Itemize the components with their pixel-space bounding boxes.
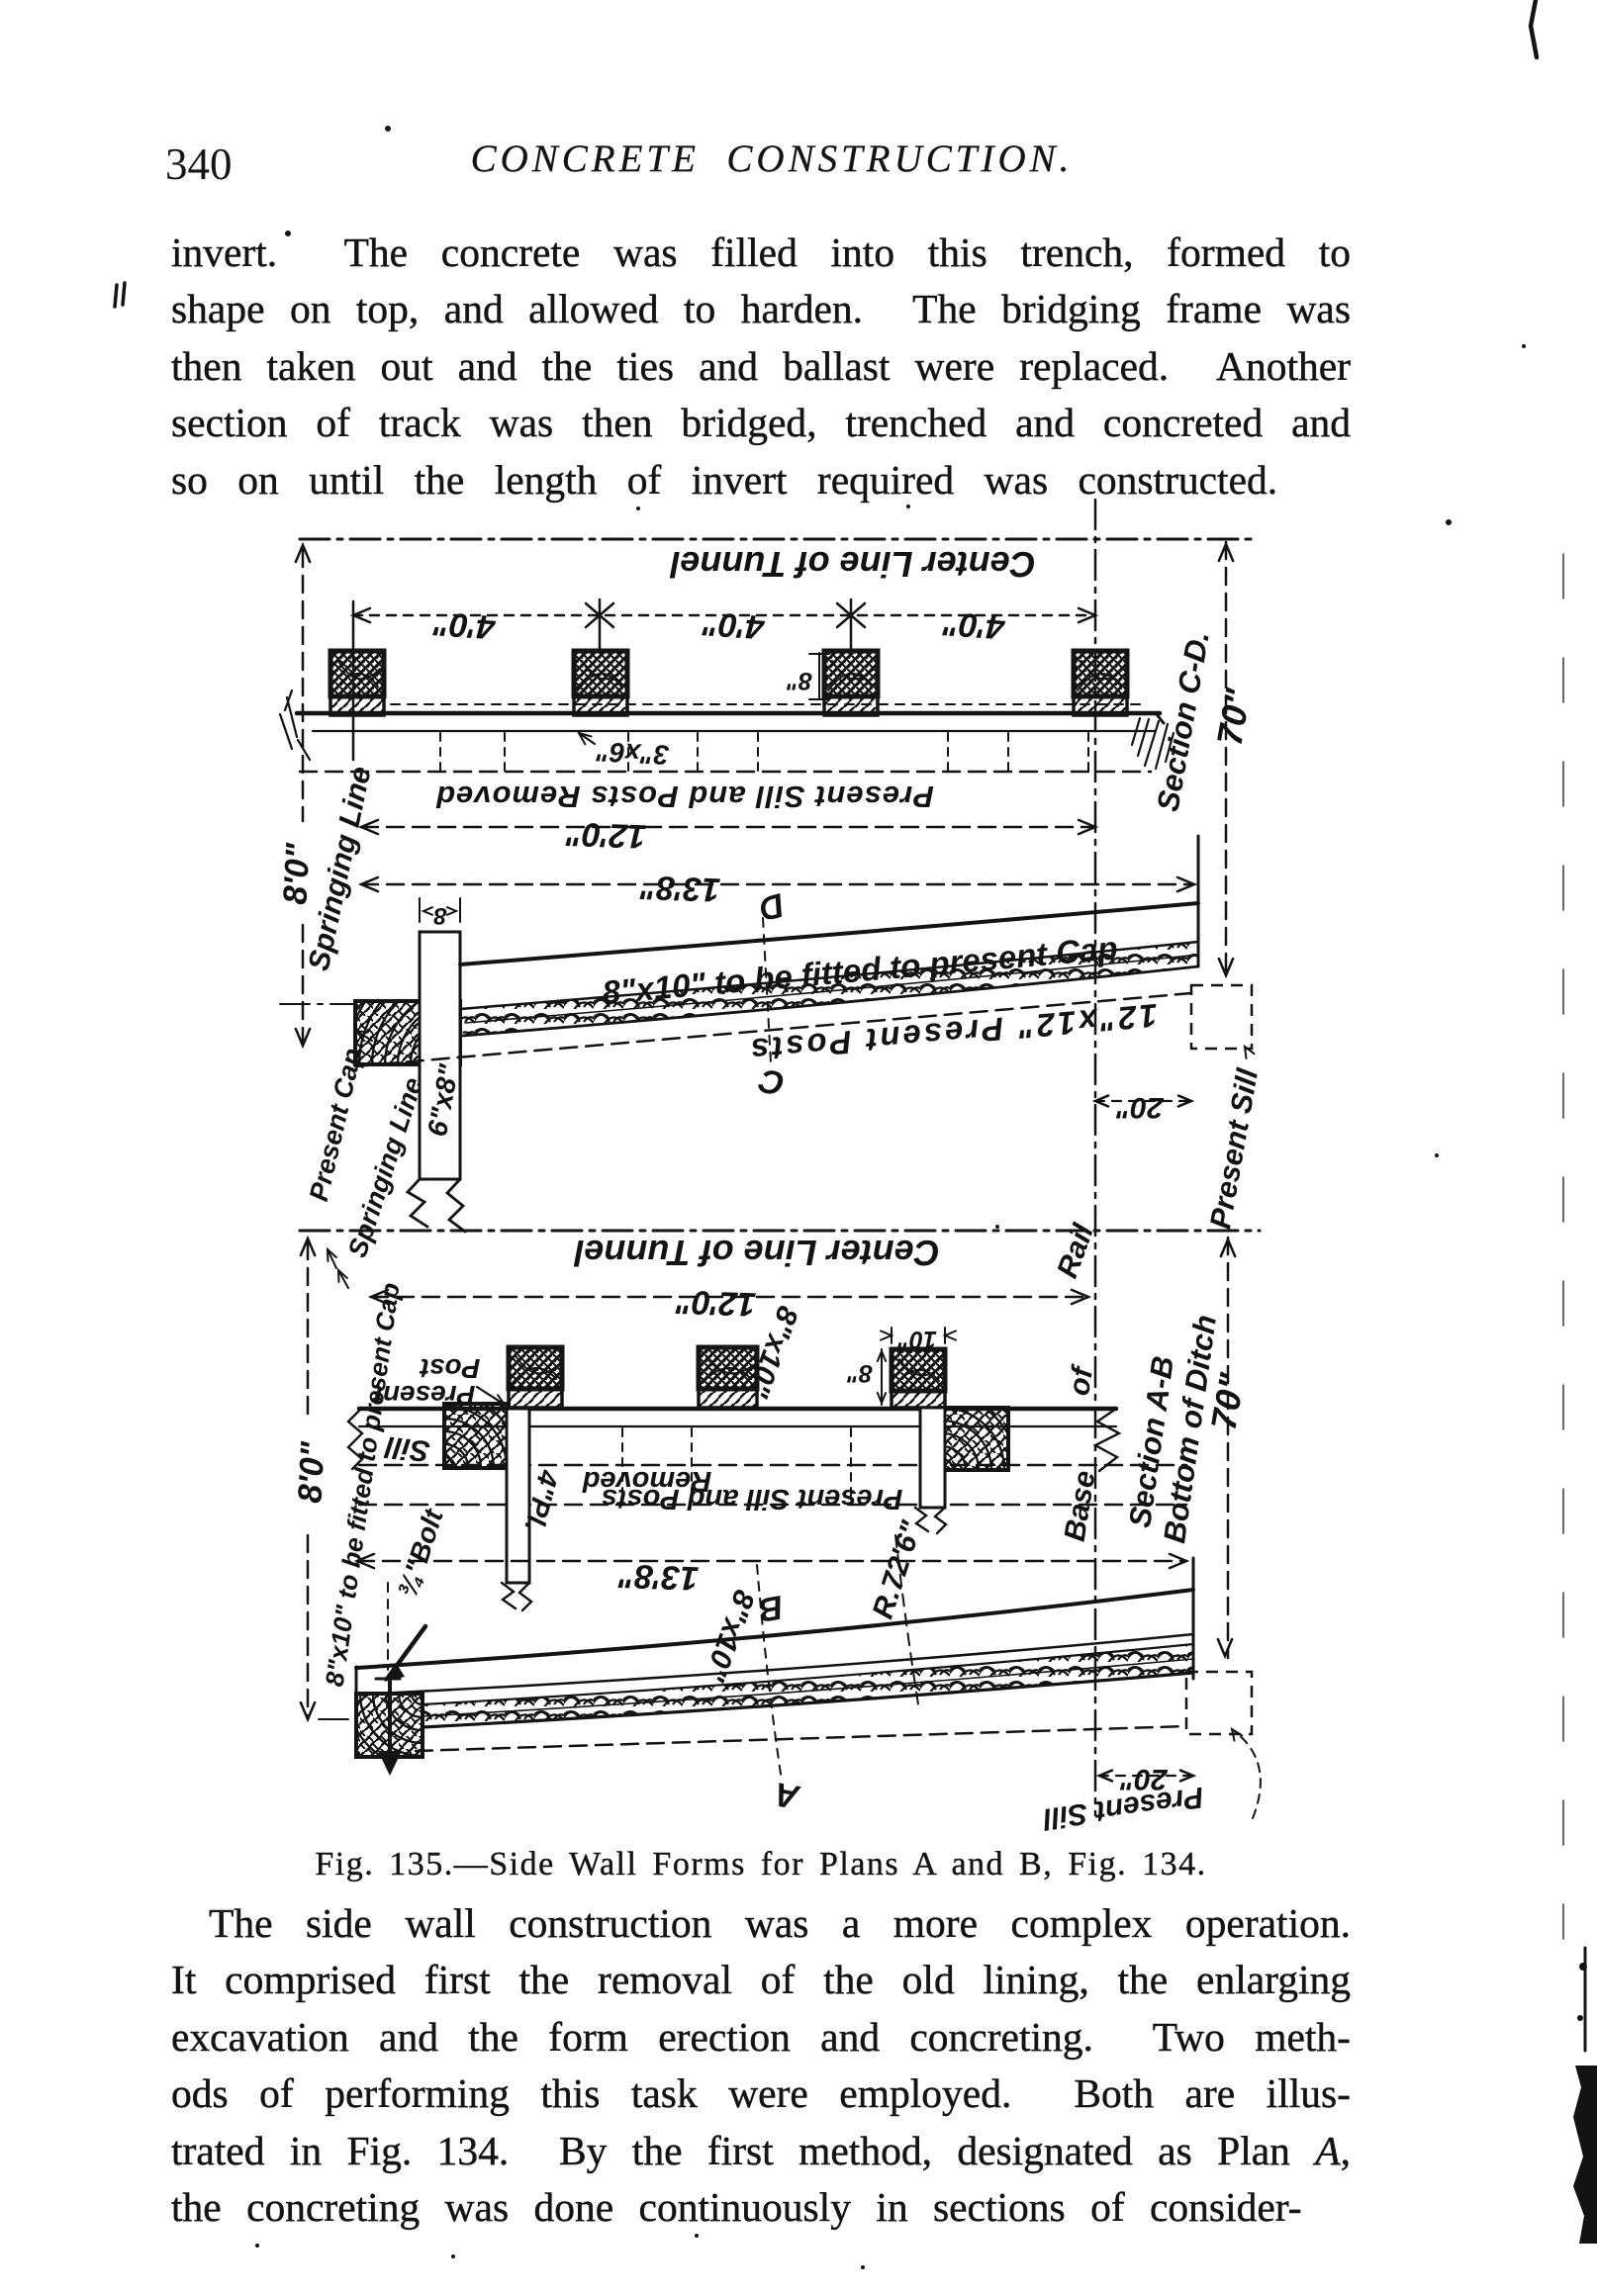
svg-text:4'0": 4'0"	[701, 604, 766, 646]
svg-text:12'0": 12'0"	[675, 1283, 757, 1324]
svg-text:Present: Present	[372, 1380, 475, 1411]
svg-text:4'0": 4'0"	[431, 604, 497, 646]
svg-text:8'0": 8'0"	[291, 1440, 331, 1505]
svg-text:13'8": 13'8"	[617, 1557, 700, 1598]
svg-text:Present Cap: Present Cap	[304, 1046, 368, 1204]
svg-text:8": 8"	[846, 1359, 873, 1387]
svg-text:Present Sill and Posts: Present Sill and Posts	[602, 1483, 903, 1515]
svg-text:Post: Post	[419, 1353, 480, 1384]
svg-text:12"x12" Present Posts: 12"x12" Present Posts	[747, 997, 1160, 1069]
svg-text:¾"Bolt: ¾"Bolt	[392, 1504, 449, 1601]
svg-text:D: D	[755, 885, 789, 928]
svg-text:8"x10" to be fitted to present: 8"x10" to be fitted to present Cap	[320, 1281, 406, 1689]
svg-text:3"x6": 3"x6"	[595, 736, 670, 771]
svg-text:8'0": 8'0"	[276, 842, 317, 906]
svg-text:Rail: Rail	[1051, 1220, 1100, 1283]
svg-text:10": 10"	[896, 1326, 937, 1353]
svg-text:A: A	[772, 1775, 803, 1816]
svg-text:70": 70"	[1209, 685, 1259, 748]
svg-text:Center Line of Tunnel: Center Line of Tunnel	[573, 1233, 939, 1273]
svg-text:4'0": 4'0"	[941, 604, 1006, 646]
svg-text:B: B	[756, 1588, 787, 1629]
svg-text:Sill: Sill	[383, 1429, 431, 1467]
svg-text:Center Line of Tunnel: Center Line of Tunnel	[669, 544, 1035, 585]
svg-text:70": 70"	[1203, 1369, 1253, 1432]
svg-text:12'0": 12'0"	[565, 815, 647, 856]
svg-text:Present Sill: Present Sill	[1204, 1065, 1265, 1231]
svg-text:20": 20"	[1115, 1091, 1164, 1124]
svg-text:8: 8	[433, 902, 447, 929]
svg-text:13'8": 13'8"	[639, 869, 721, 909]
svg-text:R.72'6": R.72'6"	[867, 1516, 929, 1622]
svg-text:Present Sill and Posts Removed: Present Sill and Posts Removed	[435, 780, 934, 814]
svg-text:Section C-D.: Section C-D.	[1150, 628, 1215, 814]
svg-text:8": 8"	[786, 667, 812, 694]
